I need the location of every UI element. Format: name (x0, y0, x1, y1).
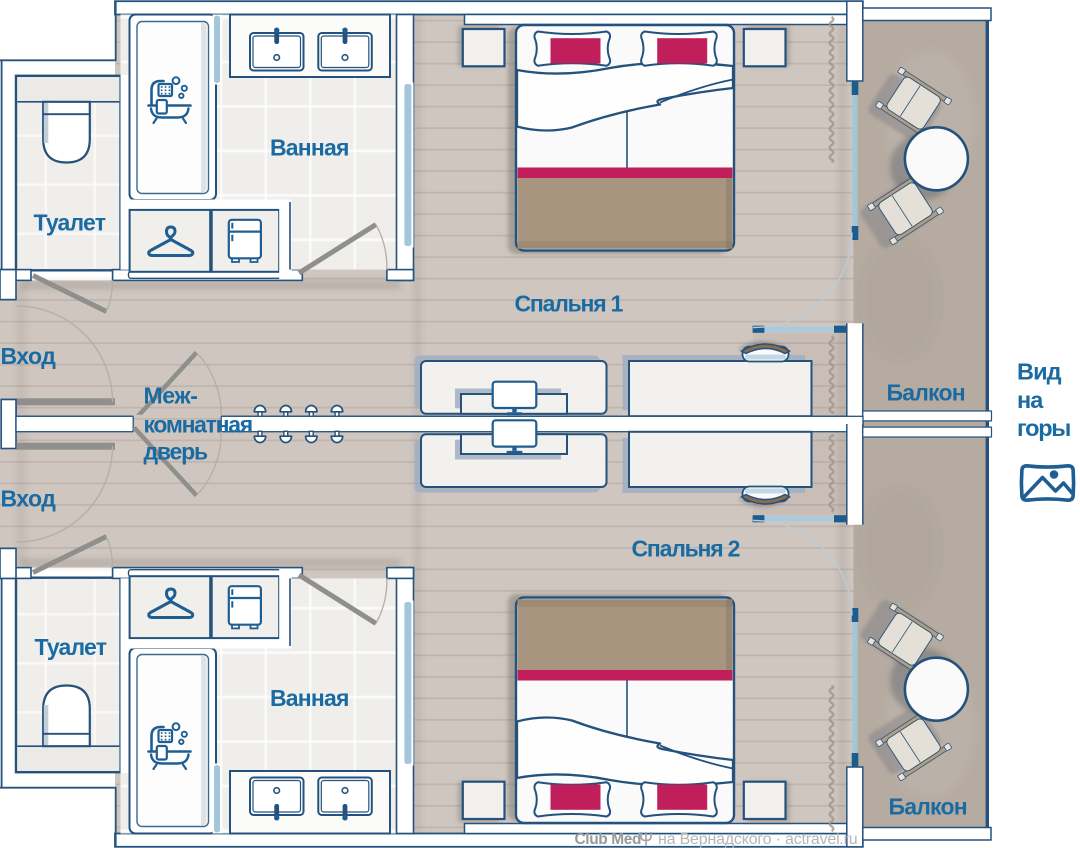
svg-text:на: на (1017, 387, 1044, 413)
svg-text:Туалет: Туалет (34, 210, 106, 236)
svg-text:Вход: Вход (1, 343, 57, 369)
svg-text:горы: горы (1017, 415, 1070, 441)
svg-text:Club Med: Club Med (575, 831, 642, 848)
svg-text:Вход: Вход (1, 486, 57, 512)
svg-text:комнатная: комнатная (144, 412, 252, 438)
svg-text:Ванная: Ванная (270, 685, 349, 711)
svg-text:Вид: Вид (1017, 359, 1062, 385)
svg-text:Туалет: Туалет (35, 634, 107, 660)
svg-text:Балкон: Балкон (889, 794, 967, 820)
svg-text:Спальня 1: Спальня 1 (515, 291, 624, 317)
svg-text:на Вернадского · actravel.ru: на Вернадского · actravel.ru (658, 831, 858, 848)
svg-text:дверь: дверь (144, 439, 208, 465)
svg-text:Спальня 2: Спальня 2 (632, 536, 740, 562)
svg-text:Ванная: Ванная (270, 135, 349, 161)
svg-text:Балкон: Балкон (887, 380, 965, 406)
svg-text:Меж-: Меж- (144, 383, 198, 409)
